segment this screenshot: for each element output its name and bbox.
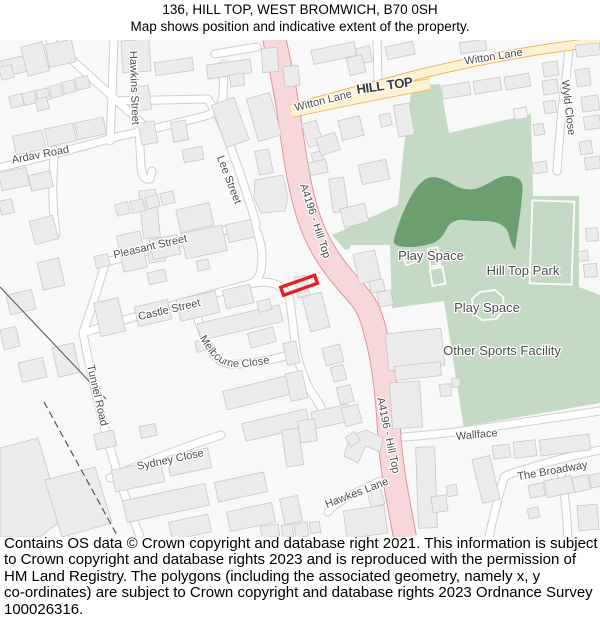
svg-text:Play Space: Play Space <box>398 248 464 263</box>
svg-text:Play Space: Play Space <box>454 300 520 315</box>
svg-text:Hill Top Park: Hill Top Park <box>487 263 560 278</box>
svg-text:Other Sports Facility: Other Sports Facility <box>443 343 561 358</box>
